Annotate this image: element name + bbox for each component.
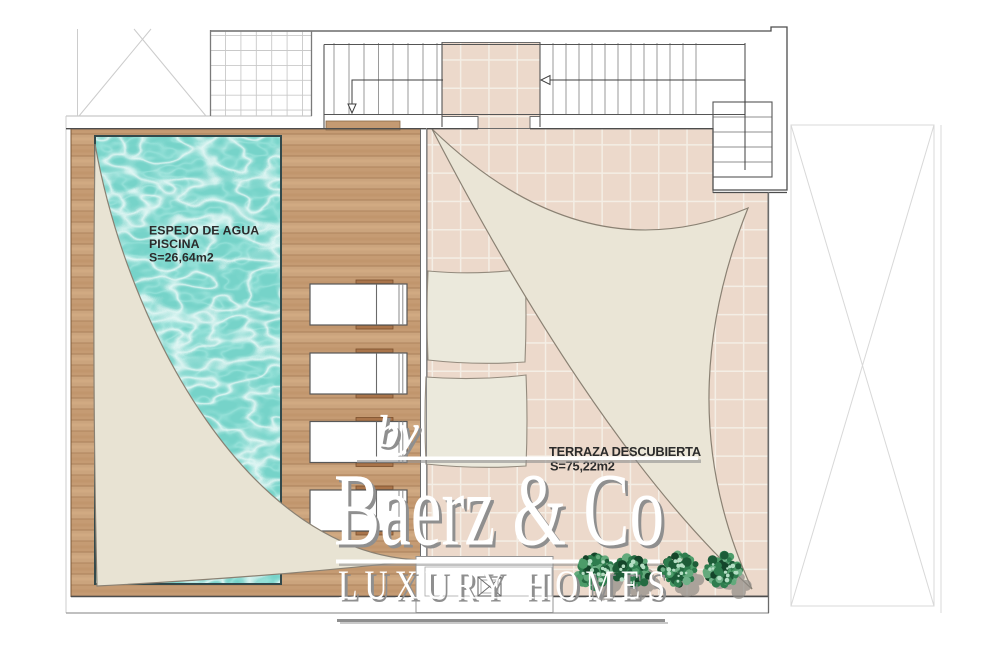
svg-text:S=26,64m2: S=26,64m2 <box>149 251 214 265</box>
svg-text:ESPEJO DE AGUA: ESPEJO DE AGUA <box>149 224 259 238</box>
svg-text:by: by <box>377 407 419 456</box>
svg-text:LUXURY HOMES: LUXURY HOMES <box>338 562 672 608</box>
svg-text:Baerz & Co: Baerz & Co <box>334 453 664 568</box>
svg-text:PISCINA: PISCINA <box>149 237 200 251</box>
